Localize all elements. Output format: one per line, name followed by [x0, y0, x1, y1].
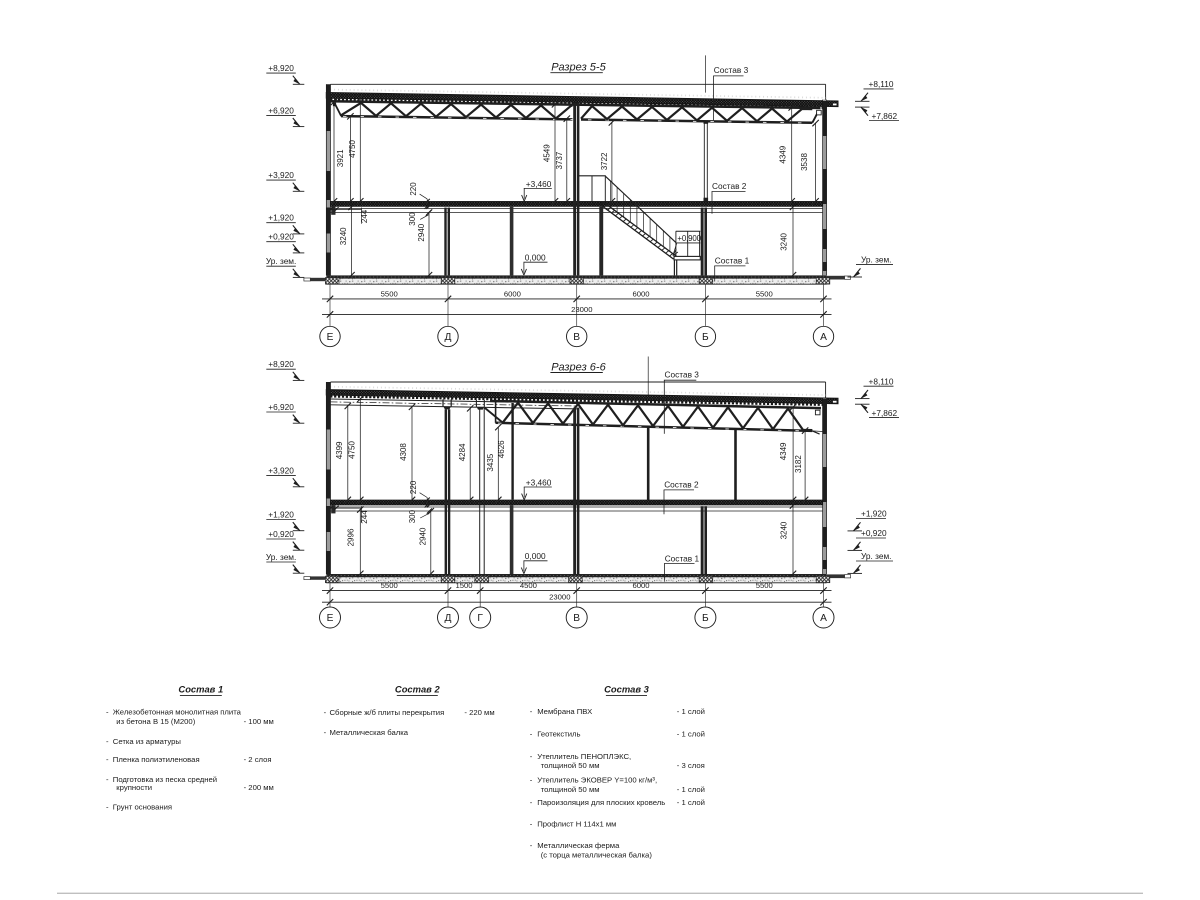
svg-text:23000: 23000: [549, 593, 570, 602]
svg-text:-: -: [106, 737, 109, 746]
svg-text:Б: Б: [702, 332, 709, 343]
svg-text:+1,920: +1,920: [268, 213, 294, 223]
svg-text:Пароизоляция для плоских крове: Пароизоляция для плоских кровель: [537, 798, 665, 807]
svg-text:Сборные ж/б плиты перекрытия: Сборные ж/б плиты перекрытия: [330, 708, 445, 717]
svg-text:Состав 1: Состав 1: [178, 683, 223, 694]
svg-text:4750: 4750: [347, 441, 356, 459]
svg-text:+3,920: +3,920: [268, 466, 294, 476]
svg-text:220: 220: [409, 182, 418, 196]
svg-text:Грунт основания: Грунт основания: [113, 803, 172, 812]
svg-text:-: -: [530, 841, 533, 850]
svg-text:Разрез 6-6: Разрез 6-6: [551, 361, 606, 373]
svg-text:4399: 4399: [335, 441, 344, 459]
svg-text:+8,920: +8,920: [268, 63, 294, 73]
svg-text:Состав 2: Состав 2: [712, 181, 747, 191]
svg-text:6000: 6000: [632, 581, 649, 590]
svg-text:Б: Б: [702, 613, 709, 624]
svg-text:- 3 слоя: - 3 слоя: [677, 761, 705, 770]
svg-text:+0,920: +0,920: [861, 528, 887, 538]
svg-text:- 1 слой: - 1 слой: [677, 798, 705, 807]
svg-text:Утеплитель ПЕНОПЛЭКС,: Утеплитель ПЕНОПЛЭКС,: [537, 752, 631, 761]
svg-text:+8,920: +8,920: [268, 359, 294, 369]
svg-text:Утеплитель ЭКОВЕР Y=100 кг/м³,: Утеплитель ЭКОВЕР Y=100 кг/м³,: [537, 776, 657, 785]
svg-text:5500: 5500: [381, 581, 398, 590]
svg-text:3921: 3921: [336, 149, 345, 167]
svg-text:-: -: [324, 728, 327, 737]
svg-text:- 200 мм: - 200 мм: [244, 783, 274, 792]
svg-text:3182: 3182: [794, 455, 803, 473]
svg-text:Металлическая балка: Металлическая балка: [330, 728, 409, 737]
svg-text:300: 300: [408, 509, 417, 523]
svg-text:Е: Е: [327, 332, 334, 343]
svg-text:4500: 4500: [520, 581, 537, 590]
svg-text:4349: 4349: [779, 442, 788, 460]
svg-text:Г: Г: [477, 613, 483, 624]
svg-text:2940: 2940: [418, 527, 427, 545]
svg-text:Мембрана ПВХ: Мембрана ПВХ: [537, 707, 592, 716]
svg-text:+1,920: +1,920: [268, 509, 294, 519]
svg-text:4349: 4349: [779, 145, 788, 163]
svg-text:+1,920: +1,920: [861, 509, 887, 519]
svg-text:Д: Д: [445, 332, 452, 343]
svg-text:Металлическая ферма: Металлическая ферма: [537, 841, 620, 850]
svg-text:3538: 3538: [800, 153, 809, 171]
svg-text:2940: 2940: [417, 223, 426, 241]
svg-text:4284: 4284: [458, 443, 467, 461]
svg-text:6000: 6000: [632, 289, 649, 298]
svg-text:Состав 1: Состав 1: [665, 553, 700, 563]
svg-text:Пленка полиэтиленовая: Пленка полиэтиленовая: [113, 755, 200, 764]
svg-text:3240: 3240: [779, 232, 788, 250]
svg-text:+3,460: +3,460: [526, 477, 552, 487]
svg-text:- 1 слой: - 1 слой: [677, 707, 705, 716]
svg-text:1500: 1500: [455, 581, 472, 590]
svg-text:0,000: 0,000: [525, 252, 546, 262]
svg-text:4308: 4308: [399, 443, 408, 461]
svg-text:5500: 5500: [381, 289, 398, 298]
svg-text:3240: 3240: [339, 227, 348, 245]
svg-text:Разрез 5-5: Разрез 5-5: [551, 62, 606, 74]
svg-text:крупности: крупности: [116, 783, 152, 792]
svg-text:толщиной 50 мм: толщиной 50 мм: [541, 785, 600, 794]
svg-text:Ур. зем.: Ур. зем.: [861, 255, 891, 265]
svg-text:- 100 мм: - 100 мм: [244, 717, 274, 726]
svg-text:2996: 2996: [347, 528, 356, 546]
svg-text:-: -: [530, 776, 533, 785]
svg-text:Состав 2: Состав 2: [664, 479, 699, 489]
svg-text:- 1 слой: - 1 слой: [677, 729, 705, 738]
svg-text:244: 244: [360, 209, 369, 223]
svg-text:Состав 3: Состав 3: [714, 65, 749, 75]
svg-text:Железобетонная монолитная пли: Железобетонная монолитная плита: [113, 708, 242, 717]
svg-text:А: А: [820, 613, 827, 624]
svg-text:-: -: [530, 798, 533, 807]
svg-text:244: 244: [360, 510, 369, 524]
svg-text:+8,110: +8,110: [869, 376, 894, 386]
svg-text:0,000: 0,000: [525, 551, 546, 561]
svg-text:300: 300: [408, 212, 417, 226]
svg-text:- 220 мм: - 220 мм: [464, 708, 494, 717]
svg-text:-: -: [530, 729, 533, 738]
svg-text:-: -: [530, 707, 533, 716]
svg-text:из бетона В 15 (М200): из бетона В 15 (М200): [116, 717, 195, 726]
svg-text:Состав 1: Состав 1: [715, 255, 750, 265]
svg-text:Состав 3: Состав 3: [665, 370, 700, 380]
svg-text:+0,920: +0,920: [268, 232, 294, 242]
svg-text:Д: Д: [445, 613, 452, 624]
svg-text:Ур. зем.: Ур. зем.: [861, 551, 891, 561]
svg-text:- 1 слой: - 1 слой: [677, 785, 705, 794]
svg-text:220: 220: [409, 480, 418, 494]
svg-text:+6,920: +6,920: [268, 402, 294, 412]
svg-text:4750: 4750: [348, 140, 357, 158]
svg-text:Ур. зем.: Ур. зем.: [266, 256, 296, 266]
svg-text:5500: 5500: [756, 289, 773, 298]
svg-text:Е: Е: [327, 613, 334, 624]
svg-text:А: А: [820, 332, 827, 343]
svg-text:4549: 4549: [542, 144, 551, 162]
svg-text:- 2 слоя: - 2 слоя: [244, 755, 272, 764]
svg-text:-: -: [530, 820, 533, 829]
svg-text:(с торца металлическая балка): (с торца металлическая балка): [541, 850, 653, 859]
svg-text:Состав 3: Состав 3: [604, 683, 650, 694]
svg-text:-: -: [324, 708, 327, 717]
svg-text:+3,920: +3,920: [268, 170, 294, 180]
svg-text:3240: 3240: [780, 521, 789, 539]
svg-text:+6,920: +6,920: [268, 105, 294, 115]
svg-text:3722: 3722: [600, 152, 609, 170]
svg-text:-: -: [106, 755, 109, 764]
svg-text:3737: 3737: [555, 151, 564, 169]
svg-text:Ур. зем.: Ур. зем.: [266, 552, 296, 562]
svg-text:+3,460: +3,460: [526, 179, 552, 189]
svg-text:Профлист Н 114х1 мм: Профлист Н 114х1 мм: [537, 820, 616, 829]
svg-text:-: -: [106, 708, 109, 717]
svg-text:5500: 5500: [756, 581, 773, 590]
svg-text:6000: 6000: [504, 289, 521, 298]
svg-text:Геотекстиль: Геотекстиль: [537, 729, 580, 738]
svg-text:+7,862: +7,862: [872, 408, 898, 418]
svg-text:-: -: [106, 803, 109, 812]
svg-text:23000: 23000: [571, 305, 592, 314]
svg-text:+7,862: +7,862: [872, 111, 898, 121]
svg-text:-: -: [106, 775, 109, 784]
svg-text:4626: 4626: [497, 440, 506, 458]
svg-text:+0,900: +0,900: [677, 234, 701, 243]
svg-text:Состав 2: Состав 2: [395, 683, 441, 694]
svg-text:-: -: [530, 752, 533, 761]
svg-text:В: В: [573, 332, 580, 343]
svg-text:В: В: [573, 613, 580, 624]
svg-text:+0,920: +0,920: [268, 529, 294, 539]
svg-text:3435: 3435: [486, 453, 495, 471]
svg-text:толщиной 50 мм: толщиной 50 мм: [541, 761, 600, 770]
svg-text:Сетка из арматуры: Сетка из арматуры: [113, 737, 181, 746]
svg-text:+8,110: +8,110: [869, 79, 894, 89]
